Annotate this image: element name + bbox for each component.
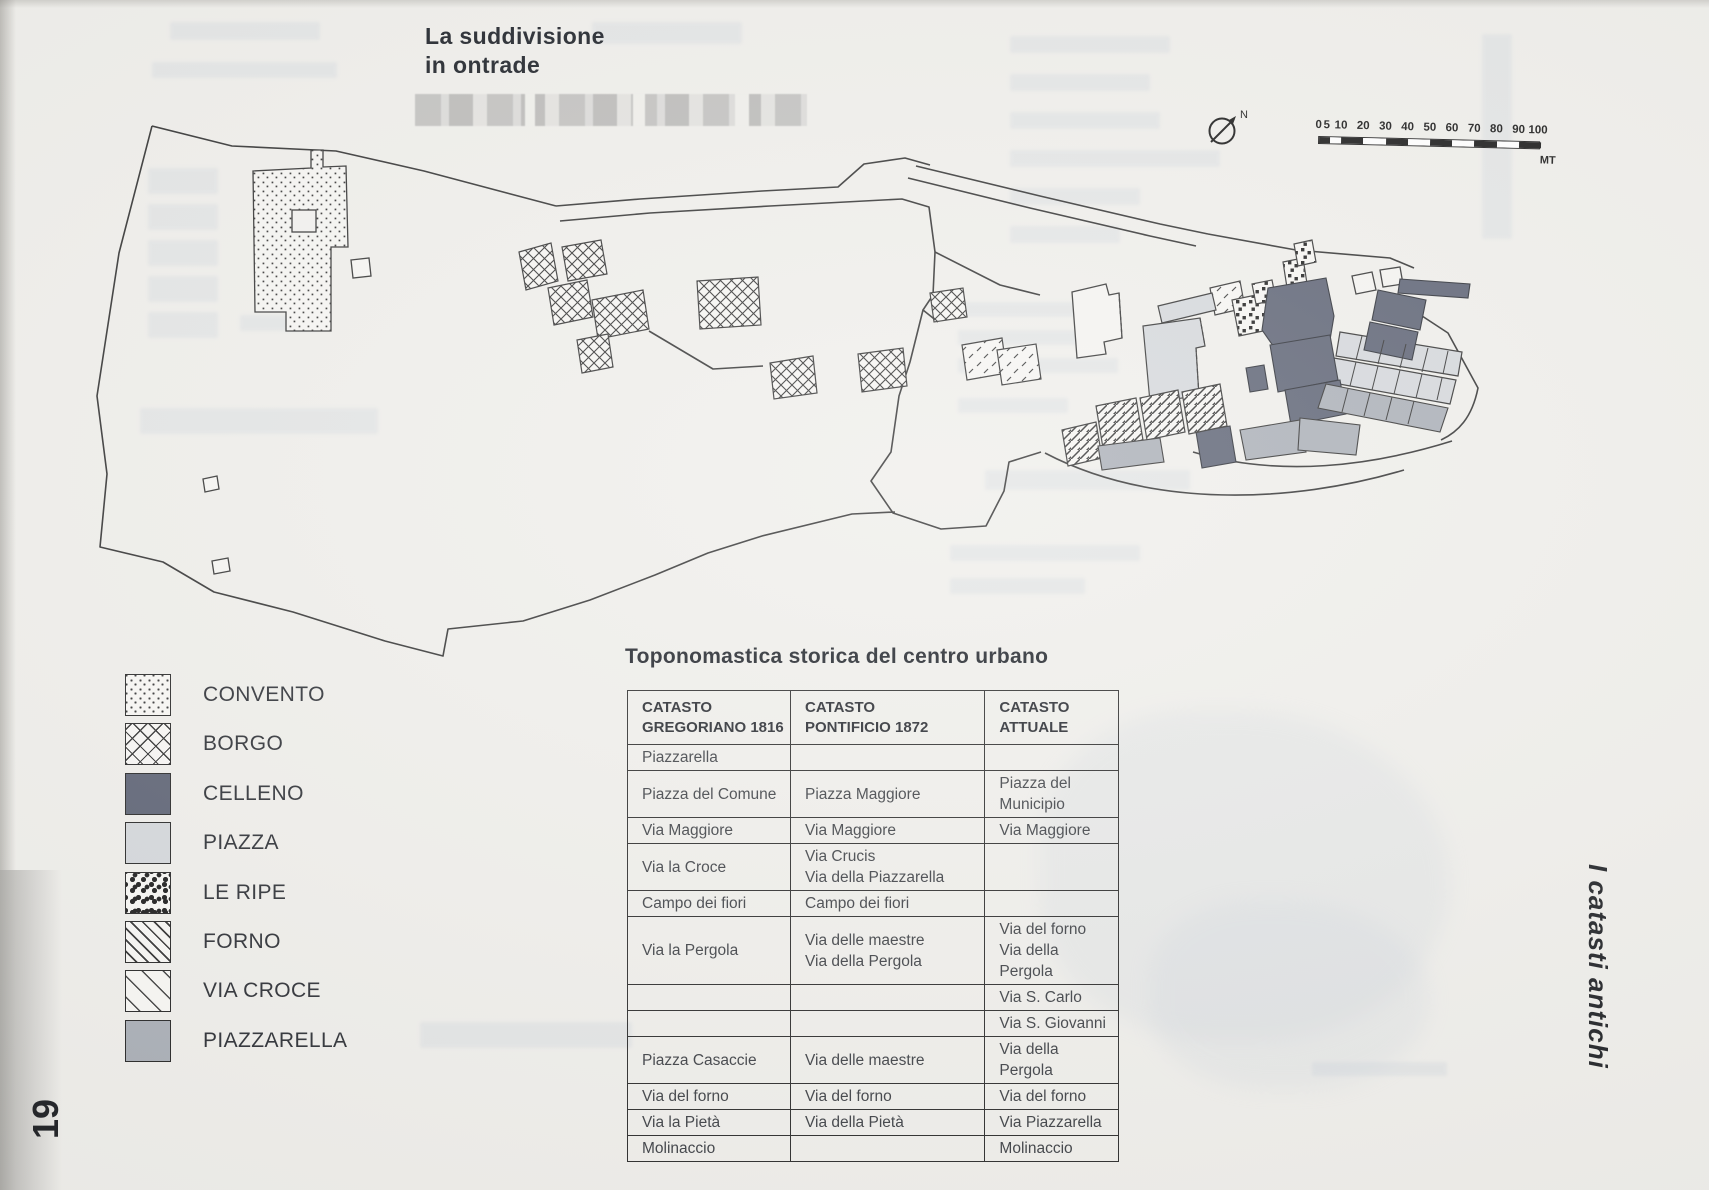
scale-segment [1386, 139, 1408, 146]
legend-item-via-croce: VIA CROCE [125, 968, 347, 1014]
scale-segment [1497, 141, 1519, 148]
column-header-catasto-pontificio: CATASTO PONTIFICIO 1872 [791, 691, 985, 745]
table-cell: Via del forno [985, 1084, 1119, 1110]
legend-label: CELLENO [203, 782, 304, 806]
le-ripe-swatch-icon [125, 872, 171, 914]
table-cell: Via S. Carlo [985, 985, 1119, 1011]
scale-tick-label: 90 [1512, 124, 1525, 136]
ghost-text [1312, 1062, 1447, 1076]
table-row: Via la CroceVia Crucis Via della Piazzar… [628, 844, 1119, 891]
table-cell: Via Maggiore [628, 818, 791, 844]
table-row: Piazza del ComunePiazza MaggiorePiazza d… [628, 771, 1119, 818]
map-convento [253, 150, 348, 331]
table-cell: Via della Pietà [791, 1110, 985, 1136]
town-map: N [0, 0, 1709, 660]
table-cell [985, 745, 1119, 771]
scale-tick-label: 20 [1357, 120, 1370, 132]
scale-tick-label: 40 [1401, 121, 1414, 133]
scale-segment [1474, 141, 1496, 148]
via-croce-swatch-icon [125, 970, 171, 1012]
legend-item-piazza: PIAZZA [125, 820, 347, 866]
table-cell [985, 891, 1119, 917]
scale-segment [1341, 138, 1363, 145]
table-cell: Molinaccio [985, 1136, 1119, 1162]
scale-tick-label: 50 [1423, 122, 1436, 134]
table-row: Via MaggioreVia MaggioreVia Maggiore [628, 818, 1119, 844]
legend-label: BORGO [203, 732, 283, 756]
table-cell: Via delle maestre Via della Pergola [791, 917, 985, 985]
table-cell: Piazza Casaccie [628, 1037, 791, 1084]
column-header-catasto-attuale: CATASTO ATTUALE [985, 691, 1119, 745]
table-cell: Via Maggiore [985, 818, 1119, 844]
table-cell: Campo dei fiori [628, 891, 791, 917]
table-cell: Via la Pietà [628, 1110, 791, 1136]
table-header: CATASTO GREGORIANO 1816 CATASTO PONTIFIC… [628, 691, 1119, 745]
table-title: Toponomastica storica del centro urbano [625, 645, 1048, 669]
table-cell: Via Maggiore [791, 818, 985, 844]
scale-segment [1452, 140, 1474, 147]
scale-bar: 05102030405060708090100 MT [1317, 119, 1568, 171]
table-cell [791, 745, 985, 771]
table-cell: Via la Pergola [628, 917, 791, 985]
page-curl-shadow [0, 870, 62, 1190]
scale-tick-label: 100 [1528, 124, 1547, 136]
legend-label: PIAZZA [203, 831, 279, 855]
table-row: MolinaccioMolinaccio [628, 1136, 1119, 1162]
legend-item-piazzarella: PIAZZARELLA [125, 1018, 347, 1064]
compass-icon: N [1210, 109, 1249, 144]
table-cell: Via della Pergola [985, 1037, 1119, 1084]
legend-label: VIA CROCE [203, 979, 321, 1003]
legend-label: PIAZZARELLA [203, 1029, 347, 1053]
table-cell [628, 1011, 791, 1037]
table-cell [791, 1136, 985, 1162]
table-cell: Via Crucis Via della Piazzarella [791, 844, 985, 891]
map-borgo [519, 240, 967, 399]
convento-swatch-icon [125, 674, 171, 716]
compass-n-label: N [1240, 109, 1248, 121]
table-body: PiazzarellaPiazza del ComunePiazza Maggi… [628, 745, 1119, 1162]
scale-tick-label: 60 [1445, 122, 1458, 134]
scale-segment [1519, 142, 1541, 149]
column-header-catasto-gregoriano: CATASTO GREGORIANO 1816 [628, 691, 791, 745]
scale-segment [1408, 139, 1430, 146]
table-row: Via la PergolaVia delle maestre Via dell… [628, 917, 1119, 985]
borgo-swatch-icon [125, 723, 171, 765]
scale-tick-label: 5 [1323, 119, 1330, 131]
table-row: Piazzarella [628, 745, 1119, 771]
scale-segment [1319, 137, 1330, 143]
piazza-swatch-icon [125, 822, 171, 864]
table-cell [628, 985, 791, 1011]
table-row: Via S. Giovanni [628, 1011, 1119, 1037]
legend-item-forno: FORNO [125, 919, 347, 965]
legend-item-celleno: CELLENO [125, 771, 347, 817]
scale-tick-label: 0 [1315, 119, 1322, 131]
section-side-label: I catasti antichi [1582, 864, 1613, 1124]
table-cell: Via del forno [791, 1084, 985, 1110]
celleno-swatch-icon [125, 773, 171, 815]
table-cell: Via del forno [628, 1084, 791, 1110]
scale-unit-label: MT [1540, 154, 1556, 166]
scale-segment [1430, 140, 1452, 147]
scale-segment [1363, 138, 1385, 145]
table-cell: Via la Croce [628, 844, 791, 891]
table-row: Via del fornoVia del fornoVia del forno [628, 1084, 1119, 1110]
map-title-line1: La suddivisione [425, 22, 605, 51]
forno-swatch-icon [125, 921, 171, 963]
table-row: Piazza CasaccieVia delle maestreVia dell… [628, 1037, 1119, 1084]
table-cell: Piazza del Comune [628, 771, 791, 818]
scale-tick-label: 30 [1379, 120, 1392, 132]
map-title-line2: in ontrade [425, 51, 605, 80]
table-cell: Via del forno Via della Pergola [985, 917, 1119, 985]
table-row: Via la PietàVia della PietàVia Piazzarel… [628, 1110, 1119, 1136]
scanned-page: N La suddivisione in ontrade 05102030405… [0, 0, 1709, 1190]
ghost-text [420, 1022, 632, 1048]
scale-segment [1330, 137, 1341, 143]
legend-label: CONVENTO [203, 683, 325, 707]
table-cell: Piazza Maggiore [791, 771, 985, 818]
table-cell: Via S. Giovanni [985, 1011, 1119, 1037]
photo-strip-faded [415, 94, 807, 126]
table-cell: Via Piazzarella [985, 1110, 1119, 1136]
toponymy-table: CATASTO GREGORIANO 1816 CATASTO PONTIFIC… [627, 690, 1119, 1162]
table-cell [985, 844, 1119, 891]
table-cell: Piazza del Municipio [985, 771, 1119, 818]
page-number: 19 [25, 1079, 67, 1139]
table-row: Campo dei fioriCampo dei fiori [628, 891, 1119, 917]
map-title: La suddivisione in ontrade [425, 22, 605, 80]
piazzarella-swatch-icon [125, 1020, 171, 1062]
scale-tick-label: 70 [1468, 123, 1481, 135]
legend-item-le-ripe: LE RIPE [125, 870, 347, 916]
table-cell: Piazzarella [628, 745, 791, 771]
table-header-row: CATASTO GREGORIANO 1816 CATASTO PONTIFIC… [628, 691, 1119, 745]
table-cell: Campo dei fiori [791, 891, 985, 917]
table-row: Via S. Carlo [628, 985, 1119, 1011]
legend-label: LE RIPE [203, 881, 286, 905]
legend-item-convento: CONVENTO [125, 672, 347, 718]
legend: CONVENTO BORGO CELLENO PIAZZA LE RIPE FO… [125, 672, 347, 1064]
scale-tick-label: 80 [1490, 123, 1503, 135]
legend-label: FORNO [203, 930, 281, 954]
table-cell: Via delle maestre [791, 1037, 985, 1084]
table-cell: Molinaccio [628, 1136, 791, 1162]
scale-tick-label: 10 [1334, 119, 1347, 131]
legend-item-borgo: BORGO [125, 721, 347, 767]
table-cell [791, 1011, 985, 1037]
table-cell [791, 985, 985, 1011]
